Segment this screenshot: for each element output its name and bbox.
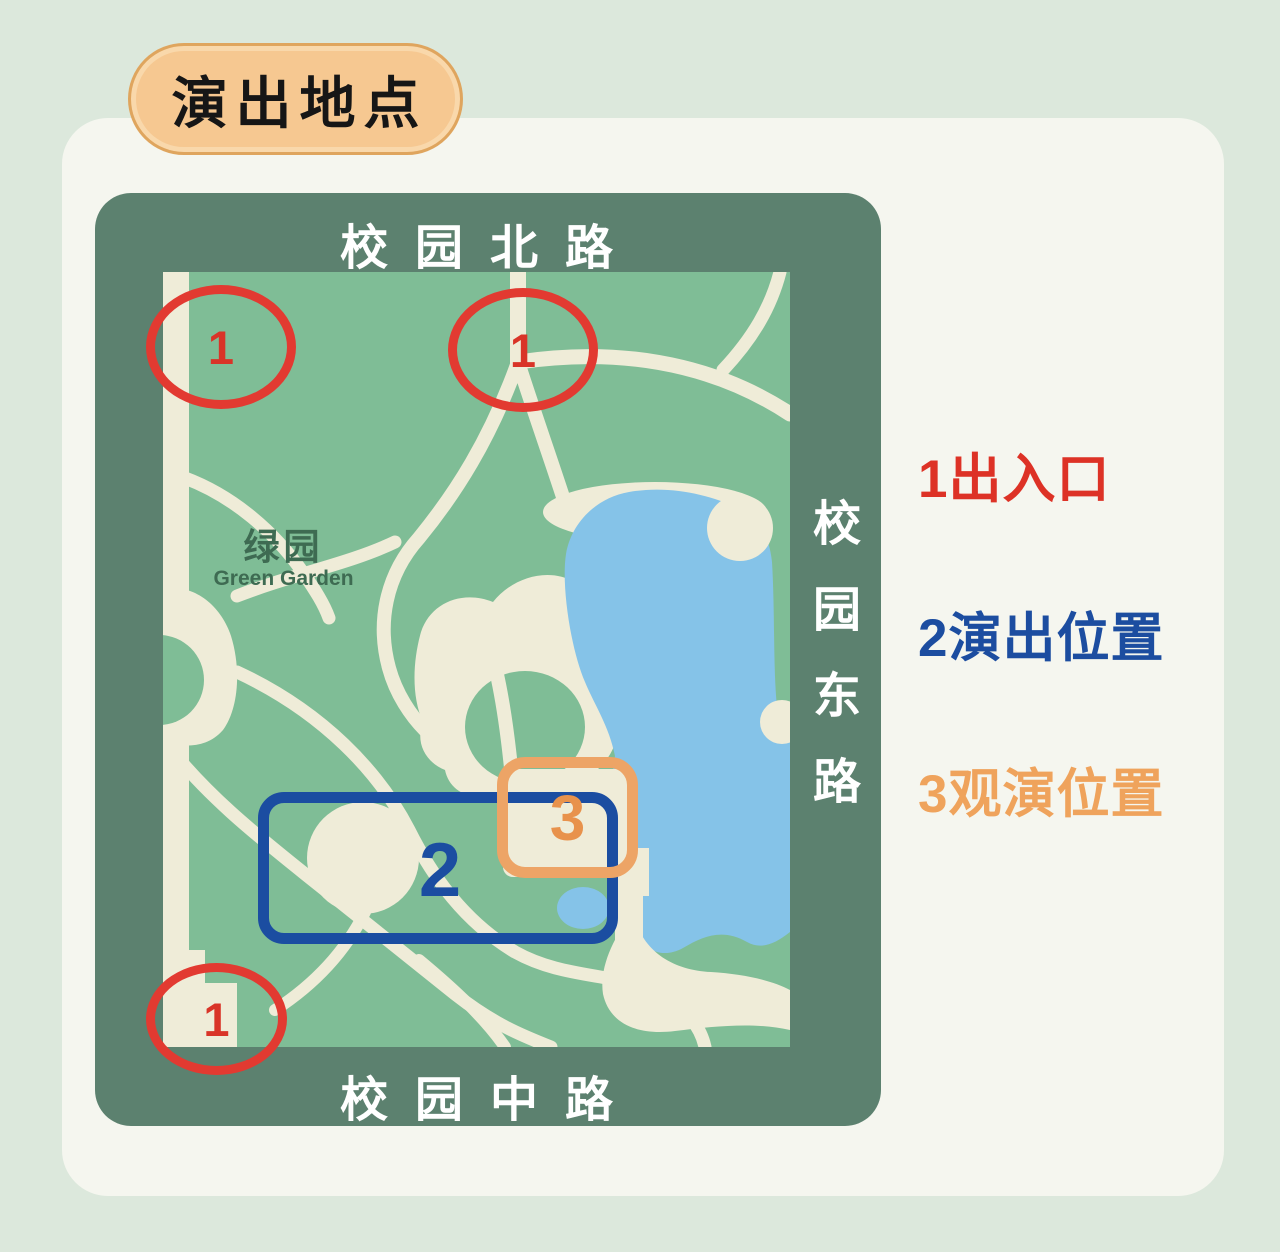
legend-viewing-num: 3 xyxy=(918,765,948,824)
viewing-zone-marker: 3 xyxy=(497,757,638,878)
page-title: 演出地点 xyxy=(164,59,428,140)
entrance-number: 1 xyxy=(208,320,234,375)
entrance-marker-bottom-left: 1 xyxy=(146,963,287,1075)
road-label-east: 校园东路 xyxy=(812,498,866,828)
road-label-north: 校园北路 xyxy=(163,208,790,278)
stage-number: 2 xyxy=(419,827,461,914)
legend-item-viewing: 3观演位置 xyxy=(918,752,1164,828)
legend-entrance-label: 出入口 xyxy=(948,450,1110,509)
title-badge: 演出地点 xyxy=(128,43,463,155)
legend-stage-num: 2 xyxy=(918,609,948,668)
legend-item-entrance: 1出入口 xyxy=(918,437,1110,513)
road-label-middle: 校园中路 xyxy=(163,1060,790,1130)
legend-entrance-num: 1 xyxy=(918,450,948,509)
legend-viewing-label: 观演位置 xyxy=(948,765,1164,824)
entrance-marker-top-left: 1 xyxy=(146,285,296,409)
entrance-number: 1 xyxy=(203,992,229,1047)
viewing-number: 3 xyxy=(550,781,586,855)
legend-stage-label: 演出位置 xyxy=(948,609,1164,668)
legend-item-stage: 2演出位置 xyxy=(918,596,1164,672)
entrance-number: 1 xyxy=(510,323,536,378)
poster-page: 演出地点 xyxy=(0,0,1280,1252)
entrance-marker-top-center: 1 xyxy=(448,288,598,412)
